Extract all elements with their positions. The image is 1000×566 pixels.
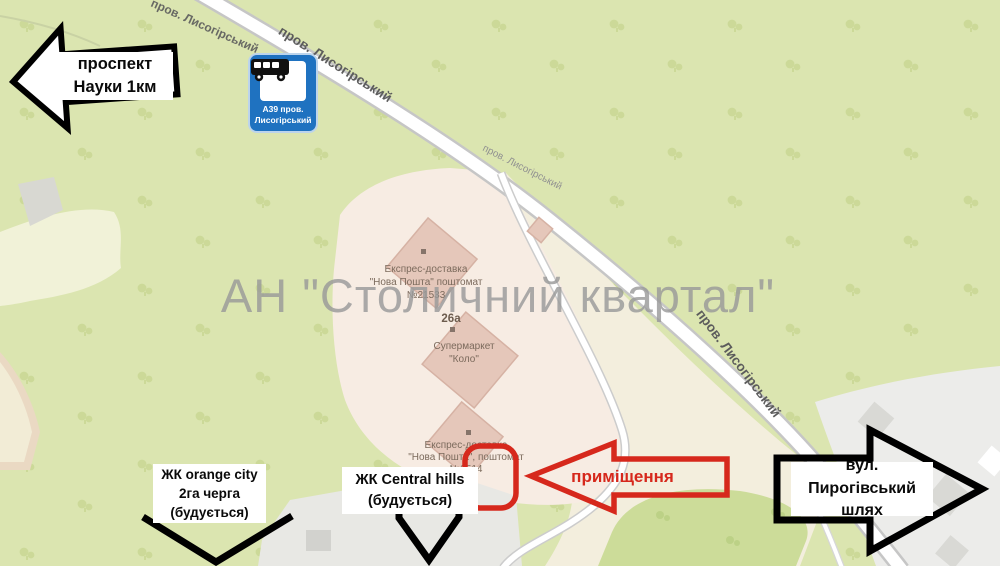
label-central-line1: ЖК Central hills xyxy=(356,470,465,491)
agency-watermark: АН "Столичний квартал" xyxy=(221,269,775,322)
label-orange-line1: ЖК orange city xyxy=(161,465,257,484)
building-gray xyxy=(306,530,331,551)
label-pyrohivskyi: вул. Пирогівський шлях xyxy=(791,462,933,516)
bus-stop-sign: А39 пров. Лисогірський xyxy=(248,53,318,133)
poi-marker-np1 xyxy=(421,249,426,254)
label-pyro-line1: вул. Пирогівський xyxy=(791,455,933,500)
poi-marker-np2 xyxy=(466,430,471,435)
bus-stop-name: Лисогірський xyxy=(255,115,312,126)
poi-supermarket-line2: "Коло" xyxy=(449,354,479,365)
label-prospekt-line1: проспект xyxy=(78,53,153,76)
poi-np2-line1: Експрес-доставка xyxy=(425,440,508,451)
poi-np2-line2: "Нова Пошта", поштомат xyxy=(408,452,524,463)
bus-icon xyxy=(250,55,290,85)
label-zhk-orange-city: ЖК orange city 2га черга (будується) xyxy=(153,464,266,523)
poi-supermarket-line1: Супермаркет xyxy=(433,341,494,352)
label-prospekt-nauky: проспект Науки 1км xyxy=(57,52,173,100)
label-orange-line2: 2га черга xyxy=(179,484,240,503)
bus-stop-route: А39 пров. xyxy=(255,104,312,115)
label-prospekt-line2: Науки 1км xyxy=(74,76,157,99)
label-premises: приміщення xyxy=(560,467,685,487)
label-pyro-line2: шлях xyxy=(841,500,883,523)
label-orange-line3: (будується) xyxy=(170,503,248,522)
bus-sign-plate xyxy=(260,61,306,101)
bus-stop-caption: А39 пров. Лисогірський xyxy=(255,104,312,126)
label-central-line2: (будується) xyxy=(368,491,452,512)
label-zhk-central-hills: ЖК Central hills (будується) xyxy=(342,467,478,514)
map-canvas: пров. Лисогірський пров. Лисогірський пр… xyxy=(0,0,1000,566)
poi-marker-supermarket xyxy=(450,327,455,332)
